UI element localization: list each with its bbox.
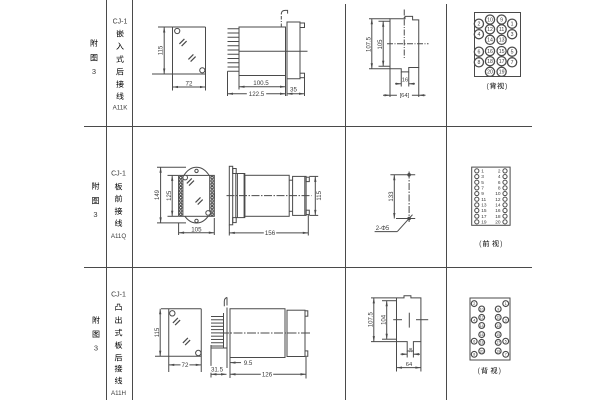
- svg-text:3: 3: [93, 210, 97, 219]
- svg-text:149: 149: [155, 189, 161, 200]
- svg-text:2: 2: [473, 302, 475, 306]
- svg-text:8: 8: [473, 353, 475, 357]
- svg-text:3: 3: [94, 344, 98, 353]
- svg-text:12: 12: [495, 197, 501, 203]
- svg-text:115: 115: [155, 327, 161, 337]
- svg-text:7: 7: [511, 60, 514, 66]
- svg-text:20: 20: [480, 349, 484, 353]
- svg-text:3: 3: [511, 32, 514, 38]
- svg-text:15: 15: [481, 208, 487, 214]
- svg-text:A11Q: A11Q: [111, 233, 127, 240]
- svg-text:104: 104: [381, 314, 387, 325]
- svg-text:7: 7: [505, 353, 507, 357]
- svg-text:14: 14: [487, 38, 493, 44]
- svg-text:CJ-1: CJ-1: [111, 291, 126, 298]
- svg-text:19: 19: [499, 70, 505, 76]
- svg-text:16: 16: [402, 78, 408, 84]
- svg-text:31.5: 31.5: [211, 366, 224, 373]
- svg-text:5: 5: [511, 50, 514, 56]
- svg-text:3: 3: [481, 174, 484, 180]
- svg-text:156: 156: [265, 230, 276, 237]
- svg-text:5: 5: [481, 180, 484, 186]
- svg-text:5: 5: [505, 339, 507, 343]
- svg-text:17: 17: [499, 59, 505, 65]
- svg-text:13: 13: [499, 38, 505, 44]
- svg-text:13: 13: [496, 324, 500, 328]
- svg-text:A11H: A11H: [111, 390, 126, 397]
- svg-text:9: 9: [481, 191, 484, 197]
- svg-text:7: 7: [481, 186, 484, 192]
- svg-text:20: 20: [487, 70, 493, 76]
- svg-text:11: 11: [496, 316, 500, 320]
- svg-text:10: 10: [480, 307, 484, 311]
- svg-text:17: 17: [496, 341, 500, 345]
- svg-text:1: 1: [481, 169, 484, 175]
- svg-text:15: 15: [499, 49, 505, 55]
- svg-text:3: 3: [92, 67, 96, 76]
- svg-text:6: 6: [477, 50, 480, 56]
- svg-text:15: 15: [496, 333, 500, 337]
- svg-text:2: 2: [498, 169, 501, 175]
- svg-text:10: 10: [495, 191, 501, 197]
- svg-text:6: 6: [473, 339, 475, 343]
- svg-text:105: 105: [378, 39, 384, 50]
- svg-text:125: 125: [167, 190, 173, 201]
- svg-text:12: 12: [487, 27, 493, 33]
- svg-text:1: 1: [505, 302, 507, 306]
- svg-text:9: 9: [497, 307, 499, 311]
- svg-text:17: 17: [481, 214, 487, 220]
- svg-text:72: 72: [182, 362, 189, 369]
- svg-text:): ): [505, 83, 507, 90]
- svg-text:CJ-1: CJ-1: [111, 170, 126, 177]
- svg-text:107.5: 107.5: [368, 312, 374, 328]
- svg-text:14: 14: [480, 324, 484, 328]
- svg-text:18: 18: [495, 214, 501, 220]
- svg-text:[64]: [64]: [400, 93, 410, 99]
- svg-text:64: 64: [406, 362, 413, 368]
- svg-text:4: 4: [473, 318, 475, 322]
- svg-text:126: 126: [262, 371, 273, 378]
- svg-text:122.5: 122.5: [249, 91, 265, 98]
- svg-text:18: 18: [480, 341, 484, 345]
- svg-text:6: 6: [498, 180, 501, 186]
- svg-text:35: 35: [290, 86, 297, 93]
- svg-text:13: 13: [481, 203, 487, 209]
- svg-text:16: 16: [487, 49, 493, 55]
- svg-text:A11K: A11K: [113, 105, 129, 112]
- svg-text:72: 72: [186, 80, 193, 87]
- svg-text:): ): [500, 241, 502, 248]
- svg-text:10: 10: [487, 17, 493, 23]
- svg-text:14: 14: [495, 203, 501, 209]
- svg-text:9.5: 9.5: [244, 360, 253, 367]
- svg-text:CJ-1: CJ-1: [113, 18, 128, 25]
- svg-text:11: 11: [499, 27, 504, 33]
- svg-text:20: 20: [495, 220, 501, 226]
- svg-text:16: 16: [408, 347, 413, 353]
- svg-text:107.5: 107.5: [366, 36, 372, 52]
- svg-text:105: 105: [191, 227, 202, 234]
- svg-text:8: 8: [477, 60, 480, 66]
- svg-text:2: 2: [477, 22, 480, 28]
- svg-text:19: 19: [496, 349, 500, 353]
- svg-text:11: 11: [481, 197, 486, 203]
- svg-text:133: 133: [389, 191, 395, 202]
- svg-text:18: 18: [487, 59, 493, 65]
- svg-text:1: 1: [511, 22, 514, 28]
- svg-text:4: 4: [477, 32, 480, 38]
- svg-text:100.5: 100.5: [253, 80, 269, 87]
- svg-text:9: 9: [500, 17, 503, 23]
- svg-text:12: 12: [480, 316, 484, 320]
- svg-text:16: 16: [480, 333, 484, 337]
- svg-text:115: 115: [317, 190, 323, 200]
- svg-text:8: 8: [498, 186, 501, 192]
- svg-text:): ): [499, 368, 501, 375]
- svg-text:4: 4: [498, 174, 501, 180]
- svg-text:115: 115: [159, 45, 165, 55]
- svg-text:2-Φ5: 2-Φ5: [376, 226, 390, 232]
- svg-text:3: 3: [505, 318, 507, 322]
- svg-text:19: 19: [481, 220, 487, 226]
- svg-text:16: 16: [495, 208, 501, 214]
